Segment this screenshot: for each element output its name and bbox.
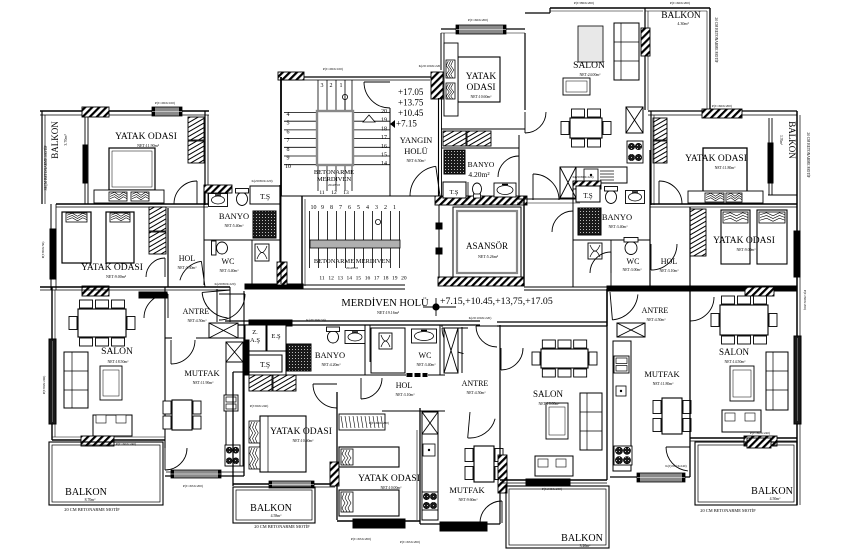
svg-text:9: 9 (321, 205, 324, 211)
svg-text:MERDIVEN: MERDIVEN (317, 176, 352, 183)
svg-text:YATAK ODASI: YATAK ODASI (358, 474, 420, 484)
svg-text:P(J:160/h:200): P(J:160/h:200) (468, 18, 488, 22)
svg-text:2: 2 (384, 205, 387, 211)
svg-text:+7.15,+10.45,+13,75,+17.05: +7.15,+10.45,+13,75,+17.05 (440, 296, 553, 307)
svg-text:15: 15 (356, 276, 362, 282)
svg-text:20x28/18: 20x28/18 (328, 183, 340, 187)
svg-text:19: 19 (381, 118, 387, 124)
svg-text:ASANSÖR: ASANSÖR (466, 241, 508, 251)
svg-text:20 CM BETONARME MOTİF: 20 CM BETONARME MOTİF (700, 508, 756, 513)
svg-text:12: 12 (331, 190, 337, 196)
svg-text:17: 17 (381, 135, 387, 141)
svg-text:BETONARME: BETONARME (314, 169, 354, 176)
svg-text:20 CM BETONARME MOTİF: 20 CM BETONARME MOTİF (714, 17, 719, 62)
svg-text:MERDİVEN HOLÜ: MERDİVEN HOLÜ (341, 297, 429, 309)
svg-text:MUTFAK: MUTFAK (449, 485, 485, 495)
svg-text:BANYO: BANYO (602, 212, 632, 222)
svg-text:P(J:165/h:200): P(J:165/h:200) (351, 537, 371, 541)
svg-text:SALON: SALON (719, 347, 750, 357)
svg-text:7: 7 (287, 138, 290, 144)
svg-text:P(J:90/h:240): P(J:90/h:240) (250, 404, 268, 408)
svg-text:YATAK ODASI: YATAK ODASI (713, 236, 775, 246)
svg-text:11: 11 (319, 276, 325, 282)
svg-text:BALKON: BALKON (787, 121, 797, 159)
svg-text:T.Ş: T.Ş (260, 192, 270, 201)
svg-text:5: 5 (357, 205, 360, 211)
svg-text:T.Ş: T.Ş (450, 189, 459, 196)
svg-text:BANYO: BANYO (315, 350, 345, 360)
svg-text:BALKON: BALKON (250, 503, 292, 514)
svg-text:20x28/18: 20x28/18 (346, 266, 358, 270)
svg-text:NET:14.50m²: NET:14.50m² (725, 360, 747, 364)
svg-text:NET:4.50m²: NET:4.50m² (188, 319, 208, 323)
svg-text:BALKON: BALKON (561, 533, 603, 544)
svg-text:+13.75: +13.75 (398, 98, 424, 108)
svg-text:P(J:165/h:200): P(J:165/h:200) (183, 484, 203, 488)
svg-text:9: 9 (287, 156, 290, 162)
svg-text:NET:10.60m²: NET:10.60m² (471, 95, 493, 99)
svg-text:MUTFAK: MUTFAK (184, 368, 220, 378)
svg-text:K(20:80/h:220): K(20:80/h:220) (251, 179, 272, 183)
svg-text:NET:3.10m²: NET:3.10m² (396, 393, 416, 397)
svg-text:YATAK ODASI: YATAK ODASI (81, 263, 143, 273)
svg-text:NET:3.00m²: NET:3.00m² (623, 268, 643, 272)
svg-text:3: 3 (375, 205, 378, 211)
svg-text:NET:18.50m²: NET:18.50m² (108, 360, 130, 364)
svg-text:K(J):80(/h:240): K(J):80(/h:240) (665, 464, 686, 468)
svg-text:P(J:380/h:200): P(J:380/h:200) (574, 1, 594, 5)
svg-text:NET:10.60m²: NET:10.60m² (293, 439, 315, 443)
svg-text:+10.45: +10.45 (398, 108, 424, 118)
svg-text:MUTFAK: MUTFAK (644, 369, 680, 379)
svg-text:K(20:30/h:50): K(20:30/h:50) (306, 318, 325, 322)
svg-text:BALKON: BALKON (50, 121, 60, 159)
svg-text:ODASI: ODASI (466, 83, 495, 93)
svg-text:NET:11.90m²: NET:11.90m² (193, 381, 215, 385)
svg-text:K(20:100/h:220): K(20:100/h:220) (469, 316, 492, 320)
svg-text:6: 6 (348, 205, 351, 211)
svg-text:P(J:100/h:100): P(J:100/h:100) (155, 101, 175, 105)
svg-text:3.26m²: 3.26m² (580, 544, 592, 548)
svg-text:NET:3.40m²: NET:3.40m² (609, 225, 629, 229)
svg-text:+7.15: +7.15 (396, 119, 417, 129)
svg-text:P(J:160/h:200): P(J:160/h:200) (670, 1, 690, 5)
svg-text:8: 8 (287, 147, 290, 153)
svg-text:P(J:240/h:240): P(J:240/h:240) (542, 487, 562, 491)
svg-text:K(20:100/h:220): K(20:100/h:220) (734, 285, 757, 289)
svg-text:WC: WC (627, 257, 640, 266)
svg-text:18: 18 (381, 126, 387, 132)
svg-text:NET:4.50m²: NET:4.50m² (467, 391, 487, 395)
svg-text:NET:19.16m²: NET:19.16m² (377, 310, 400, 315)
svg-text:HOLÜ: HOLÜ (404, 146, 428, 156)
svg-text:20: 20 (381, 109, 387, 115)
svg-text:17: 17 (374, 276, 380, 282)
svg-text:4.20m²: 4.20m² (468, 170, 490, 179)
svg-text:P(J:165/h:200): P(J:165/h:200) (400, 540, 420, 544)
svg-text:E.Ş: E.Ş (271, 333, 281, 340)
svg-text:ANTRE: ANTRE (183, 307, 210, 316)
svg-text:NET:24.00m²: NET:24.00m² (580, 73, 602, 77)
svg-text:8: 8 (330, 205, 333, 211)
svg-text:+17.05: +17.05 (398, 87, 424, 97)
svg-text:11: 11 (319, 190, 325, 196)
svg-text:P(J:160/h:200): P(J:160/h:200) (712, 104, 732, 108)
svg-text:SALON: SALON (533, 389, 564, 399)
svg-text:K(20:100/h:220): K(20:100/h:220) (419, 64, 442, 68)
svg-text:16: 16 (381, 144, 387, 150)
svg-text:P(J:260/h:200): P(J:260/h:200) (803, 290, 807, 310)
svg-text:WC: WC (222, 257, 235, 266)
svg-text:NET:9.00m²: NET:9.00m² (106, 274, 127, 279)
svg-text:4: 4 (366, 205, 369, 211)
svg-text:SALON: SALON (101, 347, 133, 357)
svg-text:SEÇM BETONARME MOTİF: SEÇM BETONARME MOTİF (43, 145, 48, 190)
svg-text:NET:3.40m²: NET:3.40m² (220, 269, 240, 273)
svg-text:1: 1 (340, 83, 343, 89)
svg-text:20: 20 (401, 276, 407, 282)
svg-text:BALKON: BALKON (65, 487, 107, 498)
svg-text:4: 4 (287, 112, 290, 118)
svg-text:BANYO: BANYO (468, 160, 495, 169)
svg-text:19: 19 (392, 276, 398, 282)
svg-text:ANTRE: ANTRE (642, 306, 669, 315)
svg-text:P(J:160/h:200): P(J:160/h:200) (369, 421, 389, 425)
svg-text:14: 14 (347, 276, 353, 282)
svg-text:BETONARME MERDIVEN: BETONARME MERDIVEN (314, 258, 391, 265)
svg-text:NET:9.60m²: NET:9.60m² (459, 498, 479, 502)
svg-text:YATAK ODASI: YATAK ODASI (270, 427, 332, 437)
svg-text:NET:3.40m²: NET:3.40m² (417, 363, 437, 367)
svg-text:P(J:90/h:50): P(J:90/h:50) (41, 242, 45, 259)
svg-text:NET:6.50m²: NET:6.50m² (407, 159, 427, 163)
svg-text:NET:11.80m²: NET:11.80m² (653, 382, 675, 386)
svg-text:NET:5.26m²: NET:5.26m² (478, 254, 499, 259)
svg-text:NET:11.80m²: NET:11.80m² (715, 166, 737, 170)
svg-text:YANGIN: YANGIN (400, 135, 433, 145)
svg-text:BANYO: BANYO (219, 211, 249, 221)
svg-text:4.30m²: 4.30m² (677, 21, 689, 26)
svg-text:YATAK: YATAK (466, 72, 497, 82)
svg-text:Z.: Z. (252, 329, 258, 336)
svg-text:14: 14 (381, 161, 387, 167)
svg-text:5: 5 (287, 121, 290, 127)
svg-text:10: 10 (285, 164, 291, 170)
svg-text:12: 12 (328, 276, 334, 282)
svg-text:T.Ş: T.Ş (583, 192, 593, 200)
svg-text:HOL: HOL (396, 381, 413, 390)
svg-text:HOL: HOL (661, 257, 678, 266)
svg-text:HOL: HOL (179, 254, 196, 263)
svg-text:20 CM BETONARME MOTİF: 20 CM BETONARME MOTİF (254, 524, 310, 529)
svg-text:NET:5.40m²: NET:5.40m² (225, 224, 245, 228)
svg-text:P(J:90/h:240): P(J:90/h:240) (42, 376, 46, 394)
svg-text:T.Ş: T.Ş (260, 360, 270, 369)
svg-text:20 CM BETONARME MOTİF: 20 CM BETONARME MOTİF (806, 132, 811, 177)
svg-text:3.70m²: 3.70m² (779, 135, 783, 145)
svg-text:K(20:80/h:220): K(20:80/h:220) (214, 282, 235, 286)
svg-text:13: 13 (343, 190, 349, 196)
svg-text:A.Ş: A.Ş (250, 337, 260, 344)
svg-text:1: 1 (393, 205, 396, 211)
svg-text:15: 15 (381, 153, 387, 159)
svg-text:K(20:80/h:220): K(20:80/h:220) (572, 175, 593, 179)
svg-text:BALKON: BALKON (661, 11, 701, 21)
svg-text:10: 10 (311, 205, 317, 211)
svg-text:P(J:160/h:240): P(J:160/h:240) (116, 442, 136, 446)
svg-text:6: 6 (287, 129, 290, 135)
svg-text:NET:11.90m²: NET:11.90m² (137, 143, 160, 148)
svg-text:SALON: SALON (573, 61, 605, 71)
svg-text:3: 3 (321, 83, 324, 89)
svg-text:NET:9.00m²: NET:9.00m² (737, 248, 757, 252)
svg-text:13: 13 (337, 276, 343, 282)
svg-text:2: 2 (330, 83, 333, 89)
svg-text:16: 16 (365, 276, 371, 282)
svg-text:BALKON: BALKON (751, 486, 793, 497)
svg-text:YATAK ODASI: YATAK ODASI (685, 154, 747, 164)
svg-text:20 CM BETONARME MOTİF: 20 CM BETONARME MOTİF (64, 507, 120, 512)
svg-text:8.70m²: 8.70m² (85, 498, 97, 502)
svg-text:NET:4.50m²: NET:4.50m² (647, 318, 667, 322)
svg-text:ANTRE: ANTRE (462, 379, 489, 388)
svg-text:3.70m²: 3.70m² (63, 134, 68, 146)
svg-text:NET:3.10m²: NET:3.10m² (660, 269, 680, 273)
svg-text:18: 18 (383, 276, 389, 282)
svg-text:7: 7 (339, 205, 342, 211)
svg-text:YATAK ODASI: YATAK ODASI (115, 132, 177, 142)
svg-text:P(J:100/h:100): P(J:100/h:100) (323, 67, 343, 71)
svg-text:WC: WC (419, 351, 432, 360)
svg-text:NET:10.00m²: NET:10.00m² (381, 486, 403, 490)
svg-text:4.58m²: 4.58m² (271, 514, 283, 518)
svg-text:NET:4.20m²: NET:4.20m² (322, 363, 342, 367)
svg-text:4.50m²: 4.50m² (770, 497, 782, 501)
svg-text:NET:18.60m²: NET:18.60m² (539, 402, 561, 406)
svg-text:P(J:160/h:240): P(J:160/h:240) (750, 431, 770, 435)
